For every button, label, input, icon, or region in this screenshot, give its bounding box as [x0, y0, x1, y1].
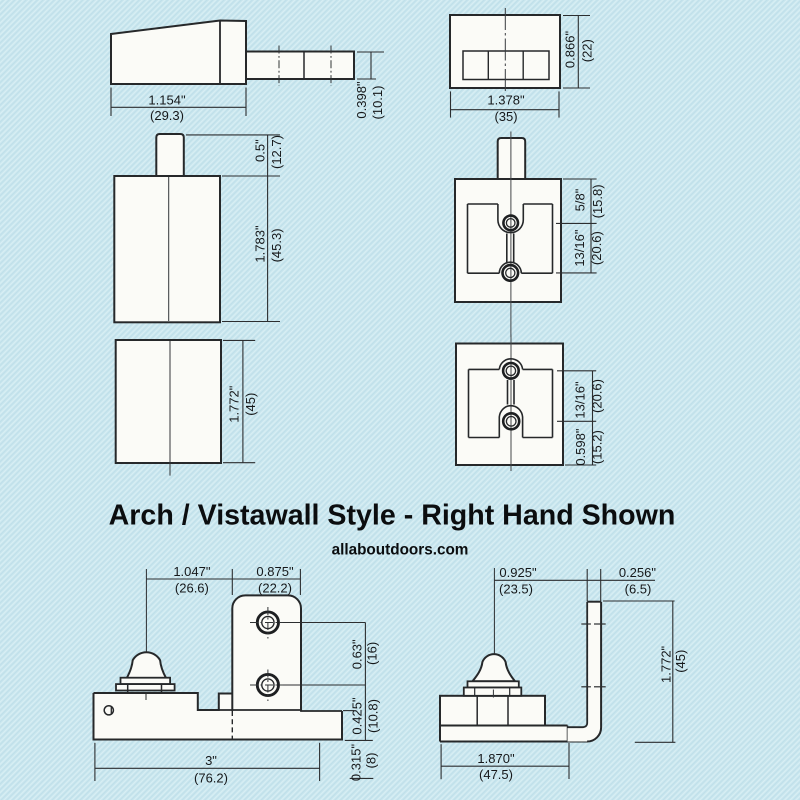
svg-text:0.925": 0.925": [499, 565, 537, 580]
svg-text:(23.5): (23.5): [499, 582, 533, 597]
svg-text:(22.2): (22.2): [258, 581, 292, 596]
svg-text:1.772": 1.772": [658, 645, 673, 683]
svg-text:Arch / Vistawall Style - Right: Arch / Vistawall Style - Right Hand Show…: [109, 500, 676, 532]
svg-text:(45.3): (45.3): [269, 228, 284, 262]
svg-text:0.5": 0.5": [253, 139, 268, 162]
svg-text:0.63": 0.63": [350, 639, 365, 669]
svg-text:(12.7): (12.7): [269, 135, 284, 169]
svg-text:allaboutdoors.com: allaboutdoors.com: [332, 542, 469, 559]
svg-text:0.398": 0.398": [354, 81, 369, 119]
svg-text:(15.2): (15.2): [590, 430, 605, 464]
svg-text:(35): (35): [494, 109, 517, 124]
svg-text:0.315": 0.315": [349, 744, 364, 782]
svg-text:(10.8): (10.8): [365, 699, 380, 733]
svg-text:(16): (16): [365, 642, 380, 665]
svg-text:(20.6): (20.6): [589, 231, 604, 265]
svg-text:(45): (45): [243, 393, 258, 416]
svg-text:(22): (22): [580, 39, 595, 62]
svg-text:0.425": 0.425": [350, 697, 365, 735]
svg-text:(6.5): (6.5): [625, 582, 652, 597]
svg-text:(20.6): (20.6): [590, 379, 605, 413]
svg-text:0.875": 0.875": [256, 564, 294, 579]
svg-text:1.870": 1.870": [477, 751, 515, 766]
svg-text:(15.8): (15.8): [590, 184, 605, 218]
svg-text:(8): (8): [364, 753, 379, 769]
svg-text:(10.1): (10.1): [370, 86, 385, 120]
svg-text:(45): (45): [673, 650, 688, 673]
svg-text:(76.2): (76.2): [194, 771, 228, 786]
svg-text:0.866": 0.866": [562, 31, 577, 69]
svg-text:1.154": 1.154": [148, 92, 186, 107]
svg-text:1.783": 1.783": [253, 225, 268, 263]
svg-text:13/16": 13/16": [573, 381, 588, 419]
svg-text:5/8": 5/8": [573, 188, 588, 211]
svg-text:(26.6): (26.6): [175, 581, 209, 596]
svg-text:1.772": 1.772": [227, 385, 242, 423]
svg-text:1.047": 1.047": [173, 564, 211, 579]
svg-text:3": 3": [205, 753, 217, 768]
svg-text:0.256": 0.256": [619, 565, 657, 580]
svg-text:0.598": 0.598": [573, 428, 588, 466]
svg-text:(29.3): (29.3): [150, 108, 184, 123]
svg-text:1.378": 1.378": [487, 93, 525, 108]
svg-text:13/16": 13/16": [572, 229, 587, 267]
svg-text:(47.5): (47.5): [479, 767, 513, 782]
